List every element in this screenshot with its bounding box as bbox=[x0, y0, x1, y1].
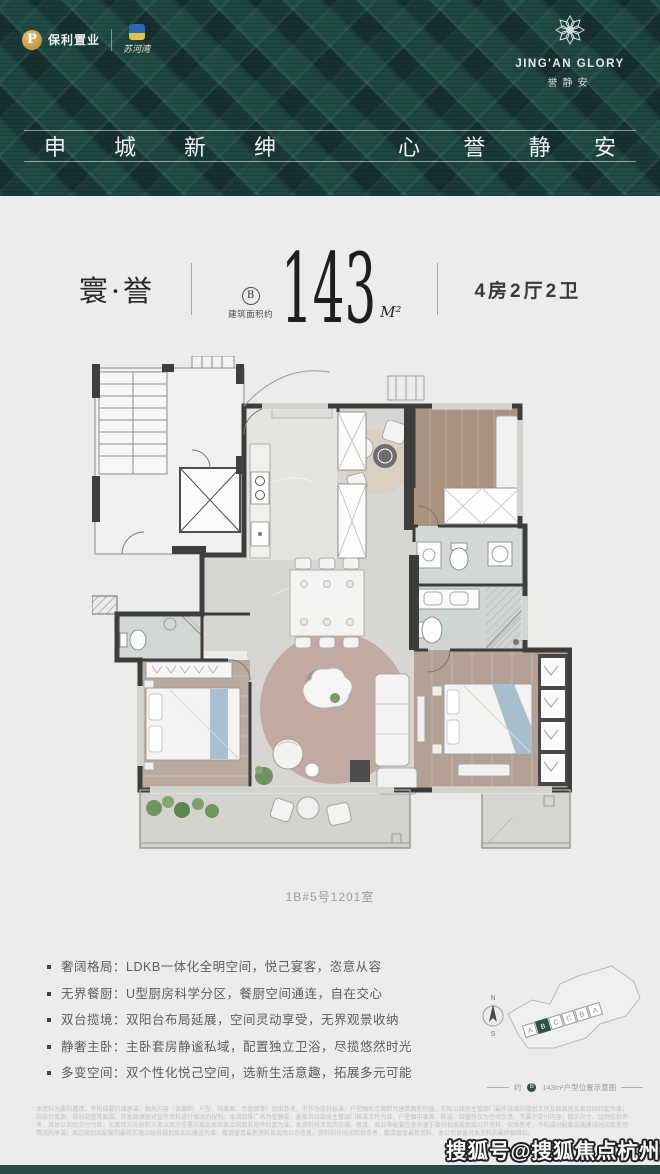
divider-line bbox=[191, 263, 192, 315]
area-block: B 建筑面积约 143 M² bbox=[228, 250, 401, 329]
hallway-floor bbox=[202, 555, 250, 651]
dining-set bbox=[290, 558, 364, 648]
floor-plan bbox=[92, 356, 572, 878]
partner-logo-label: 苏河湾 bbox=[123, 42, 150, 55]
bullet-icon bbox=[47, 1071, 51, 1075]
poly-logo: P 保利置业 bbox=[22, 30, 100, 50]
room-layout: 4房2厅2卫 bbox=[474, 276, 581, 303]
guest-bath-floor bbox=[117, 614, 202, 660]
entry-canopy-curve bbox=[244, 371, 330, 406]
balcony2-floor bbox=[482, 790, 570, 848]
logo-group: P 保利置业 苏河湾 bbox=[22, 24, 150, 55]
feature-item: 静奢主卧：主卧套房静谧私域，配置独立卫浴，尽揽悠然时光 bbox=[47, 1034, 412, 1061]
poster: P 保利置业 苏河湾 bbox=[0, 0, 660, 1174]
unit-type-badge: B bbox=[242, 287, 260, 305]
bullet-icon bbox=[47, 1018, 51, 1022]
bullet-icon bbox=[47, 965, 51, 969]
slogan-left: 申 城 新 绅 bbox=[44, 130, 276, 162]
slogan-right: 心 誉 静 安 bbox=[398, 130, 616, 162]
logo-divider bbox=[111, 29, 112, 51]
compass-icon: N S bbox=[483, 995, 503, 1038]
brand-name-en: JING'AN GLORY bbox=[504, 58, 636, 70]
sohu-watermark: 搜狐号@搜狐焦点杭州站 bbox=[446, 1134, 660, 1164]
flower-emblem-icon bbox=[552, 12, 588, 48]
bullet-icon bbox=[47, 1045, 51, 1049]
bottom-bar bbox=[0, 1165, 660, 1174]
plant bbox=[162, 796, 174, 808]
bed-runner bbox=[210, 689, 228, 759]
svg-text:S: S bbox=[491, 1031, 496, 1038]
toilet bbox=[450, 548, 468, 570]
plant bbox=[174, 802, 190, 818]
partner-logo: 苏河湾 bbox=[123, 24, 150, 55]
balcony-floor bbox=[140, 790, 410, 848]
feature-item: 奢阔格局：LDKB一体化全明空间，悦己宴客，恣意从容 bbox=[47, 954, 412, 981]
series-name: 寰·誉 bbox=[79, 268, 155, 310]
feature-list: 奢阔格局：LDKB一体化全明空间，悦己宴客，恣意从容 无界餐厨：U型厨房科学分区… bbox=[47, 954, 412, 1087]
slogan-bar: 申 城 新 绅 心 誉 静 安 bbox=[24, 130, 636, 162]
plant bbox=[146, 800, 162, 816]
poly-logo-icon: P bbox=[22, 30, 42, 50]
feature-item: 无界餐厨：U型厨房科学分区，餐厨空间通连，自在交心 bbox=[47, 981, 412, 1008]
wardrobe bbox=[444, 488, 520, 524]
plant bbox=[205, 804, 219, 818]
bath2 bbox=[417, 542, 512, 570]
site-plan: N S A B C C B A bbox=[480, 964, 650, 1074]
brand-name-cn: 誉静安 bbox=[504, 74, 636, 89]
svg-text:N: N bbox=[490, 995, 495, 1002]
unit-title-row: 寰·誉 B 建筑面积约 143 M² 4房2厅2卫 bbox=[0, 250, 660, 329]
plant bbox=[192, 798, 204, 810]
divider-line bbox=[437, 263, 438, 315]
toilet bbox=[422, 617, 442, 643]
bullet-icon bbox=[47, 992, 51, 996]
header-banner: P 保利置业 苏河湾 bbox=[0, 0, 660, 196]
project-brand: JING'AN GLORY 誉静安 bbox=[504, 12, 636, 89]
site-plan-caption: 约 B 143m²户型位置示意图 bbox=[470, 1082, 660, 1093]
partner-logo-icon bbox=[129, 24, 145, 40]
unit-type-badge-small: B bbox=[527, 1083, 536, 1092]
feature-item: 多变空间：双个性化悦己空间，选新生活意趣，拓展多元可能 bbox=[47, 1060, 412, 1087]
area-unit: M² bbox=[380, 303, 401, 321]
bench bbox=[458, 764, 510, 776]
poly-logo-label: 保利置业 bbox=[48, 31, 100, 48]
feature-item: 双台揽境：双阳台布局延展，空间灵动享受，无界观景收纳 bbox=[47, 1007, 412, 1034]
area-value: 143 bbox=[281, 250, 376, 329]
room-number-label: 1B#5号1201室 bbox=[0, 888, 660, 905]
toilet bbox=[130, 630, 146, 650]
area-prefix: 建筑面积约 bbox=[228, 308, 273, 320]
